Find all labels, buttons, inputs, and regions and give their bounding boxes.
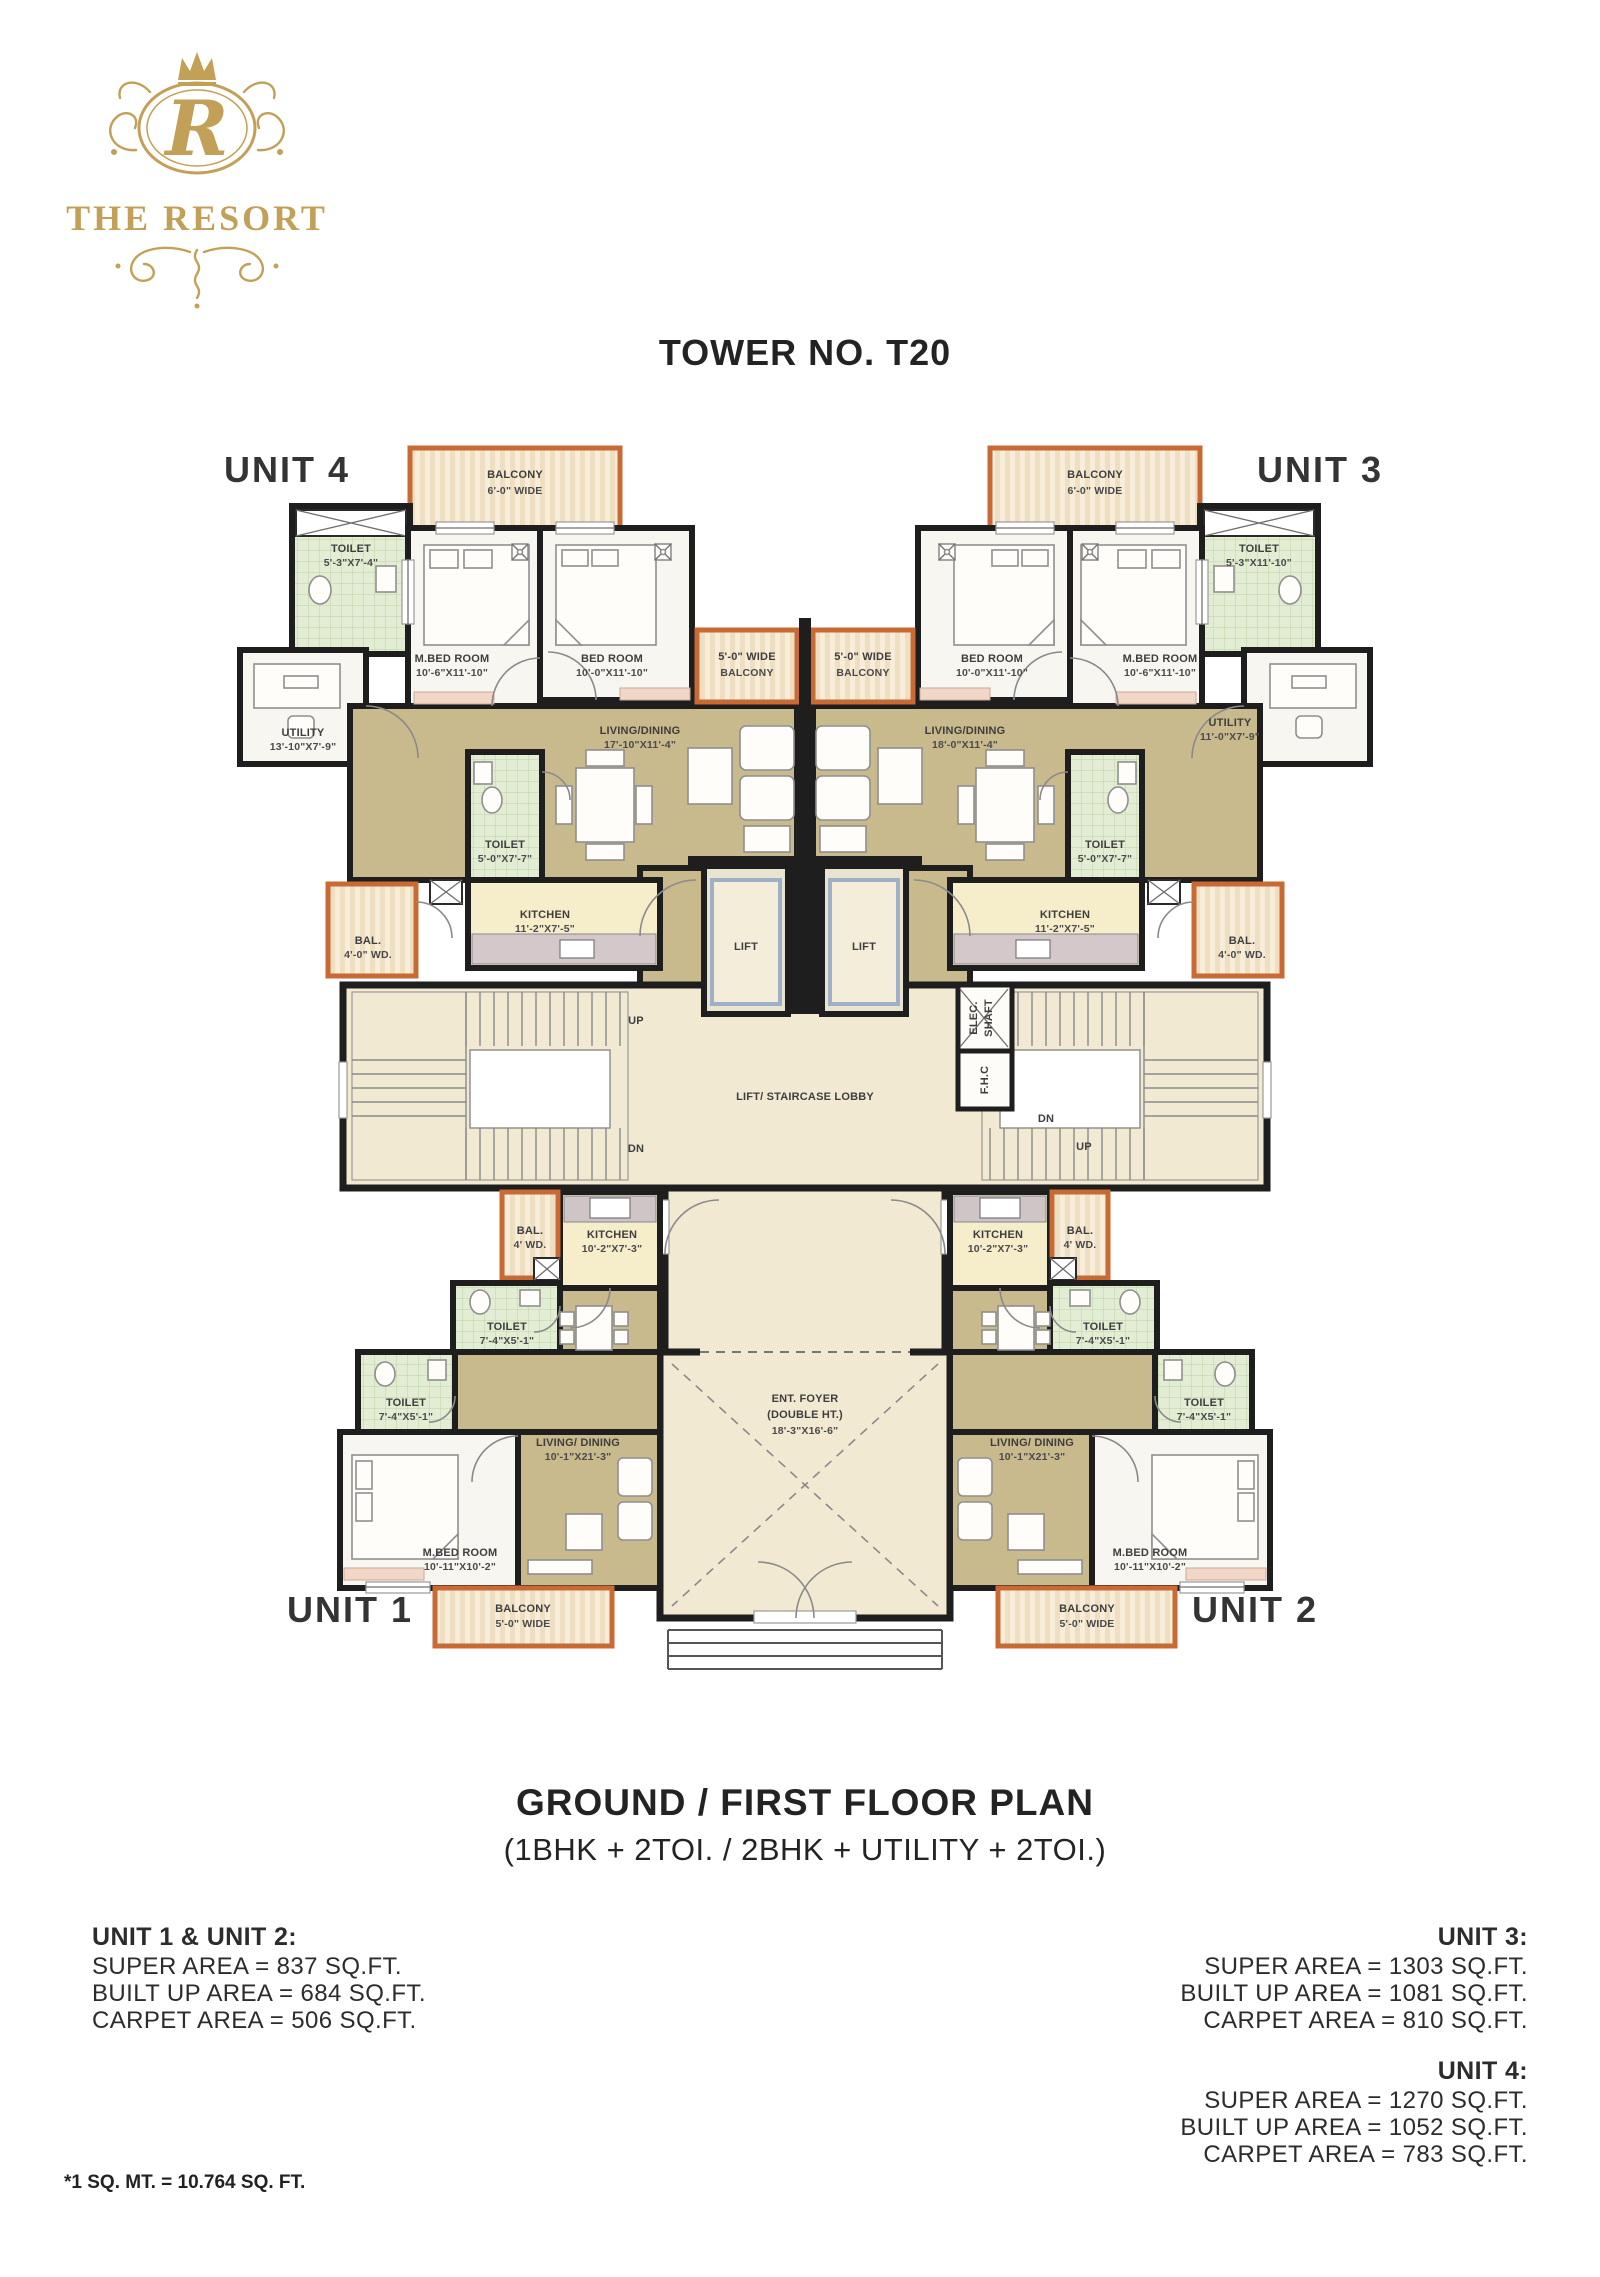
entrance-passage <box>665 1188 945 1352</box>
room-label: BAL. <box>355 935 381 947</box>
wardrobe-strip <box>620 688 690 700</box>
unit1-balcony <box>435 1588 612 1646</box>
room-label: BED ROOM <box>961 653 1023 665</box>
unit4-label: UNIT 4 <box>224 449 350 490</box>
foyer-dims: 18'-3"X16'-6" <box>772 1425 839 1437</box>
stats-heading: UNIT 3: <box>1180 1924 1528 1951</box>
room-dims: 11'-2"X7'-5" <box>1035 923 1095 935</box>
unit1-living-b <box>455 1352 660 1432</box>
room-label: BALCONY <box>1059 1603 1115 1615</box>
stats-heading: UNIT 4: <box>1180 2058 1528 2085</box>
window <box>366 1582 430 1593</box>
room-dims: 4' WD. <box>514 1239 547 1251</box>
room-label: TOILET <box>1085 839 1125 851</box>
room-label: BALCONY <box>495 1603 551 1615</box>
conversion-footnote: *1 SQ. MT. = 10.764 SQ. FT. <box>64 2172 305 2194</box>
room-label: 5'-0" WIDE <box>834 651 892 663</box>
room-dims: 5'-0" WIDE <box>1060 1618 1115 1630</box>
room-label: TOILET <box>1239 543 1279 555</box>
brochure-page: R THE RESORT TOWER NO. T20 UNIT 4 UNIT 3… <box>0 0 1600 2277</box>
room-dims: 18'-0"X11'-4" <box>932 739 998 751</box>
room-label: LIVING/ DINING <box>536 1437 620 1449</box>
lift-divider-wall <box>788 866 822 1014</box>
kitchen-sink <box>590 1198 630 1218</box>
room-dims: 10'-11"X10'-2" <box>424 1561 496 1573</box>
page-title: TOWER NO. T20 <box>659 332 951 373</box>
room-dims: 5'-3"X7'-4" <box>324 557 379 569</box>
room-dims: 17'-10"X11'-4" <box>604 739 676 751</box>
lobby-label: LIFT/ STAIRCASE LOBBY <box>736 1091 874 1103</box>
stats-line: SUPER AREA = 837 SQ.FT. <box>92 1953 426 1980</box>
wardrobe-strip <box>414 692 494 704</box>
unit2-label: UNIT 2 <box>1192 1589 1318 1630</box>
room-label: BAL. <box>1229 935 1255 947</box>
room-dims: 4'-0" WD. <box>344 949 392 961</box>
room-dims: 7'-4"X5'-1" <box>379 1411 434 1423</box>
room-dims: 6'-0" WIDE <box>1068 485 1123 497</box>
logo-ornament <box>116 248 279 309</box>
room-label: TOILET <box>331 543 371 555</box>
room-label: KITCHEN <box>973 1229 1023 1241</box>
entrance-steps <box>668 1630 942 1669</box>
stats-line: SUPER AREA = 1270 SQ.FT. <box>1180 2087 1528 2114</box>
stats-unit1-unit2: UNIT 1 & UNIT 2: SUPER AREA = 837 SQ.FT.… <box>92 1924 426 2034</box>
lift-right <box>822 866 906 1014</box>
stats-line: BUILT UP AREA = 1081 SQ.FT. <box>1180 1980 1528 2007</box>
room-label: LIVING/ DINING <box>990 1437 1074 1449</box>
unit1-label: UNIT 1 <box>287 1589 413 1630</box>
kitchen-sink <box>560 940 594 958</box>
logo-monogram: R <box>163 84 228 173</box>
room-dims: BALCONY <box>836 667 889 679</box>
room-label: LIVING/DINING <box>600 725 681 737</box>
room-label: UTILITY <box>1209 717 1252 729</box>
elec-shaft-label: ELEC. <box>968 1001 980 1034</box>
room-dims: BALCONY <box>720 667 773 679</box>
floor-plan-subtitle: (1BHK + 2TOI. / 2BHK + UTILITY + 2TOI.) <box>5 1832 1600 1868</box>
room-dims: 7'-4"X5'-1" <box>1076 1335 1131 1347</box>
room-dims: 5'-0"X7'-7" <box>478 853 533 865</box>
room-dims: 10'-2"X7'-3" <box>968 1243 1029 1255</box>
room-label: KITCHEN <box>520 909 570 921</box>
resort-logo: R THE RESORT <box>66 52 328 309</box>
room-label: M.BED ROOM <box>1123 653 1198 665</box>
room-dims: 10'-11"X10'-2" <box>1114 1561 1186 1573</box>
room-label: TOILET <box>386 1397 426 1409</box>
foyer-label: (DOUBLE HT.) <box>767 1409 843 1421</box>
room-label: BAL. <box>517 1225 543 1237</box>
stair-up-label: UP <box>1076 1141 1092 1153</box>
room-dims: 10'-6"X11'-10" <box>416 667 488 679</box>
room-dims: 10'-1"X21'-3" <box>999 1451 1066 1463</box>
foyer-label: ENT. FOYER <box>772 1393 839 1405</box>
room-dims: 11'-2"X7'-5" <box>515 923 575 935</box>
fhc-label: F.H.C <box>979 1066 991 1095</box>
room-dims: 10'-1"X21'-3" <box>545 1451 612 1463</box>
room-dims: 7'-4"X5'-1" <box>480 1335 535 1347</box>
room-label: TOILET <box>1184 1397 1224 1409</box>
stats-heading: UNIT 1 & UNIT 2: <box>92 1924 426 1951</box>
room-label: M.BED ROOM <box>415 653 490 665</box>
room-dims: 10'-6"X11'-10" <box>1124 667 1196 679</box>
stats-unit4: UNIT 4: SUPER AREA = 1270 SQ.FT. BUILT U… <box>1180 2058 1528 2168</box>
room-dims: 5'-3"X11'-10" <box>1226 557 1292 569</box>
stats-line: BUILT UP AREA = 684 SQ.FT. <box>92 1980 426 2007</box>
wardrobe-strip <box>344 1568 424 1580</box>
stats-line: CARPET AREA = 783 SQ.FT. <box>1180 2141 1528 2168</box>
room-label: BED ROOM <box>581 653 643 665</box>
room-dims: 4' WD. <box>1064 1239 1097 1251</box>
unit4-side-balcony <box>697 630 797 702</box>
axis-wall <box>799 618 811 870</box>
room-label: M.BED ROOM <box>1113 1547 1188 1559</box>
room-dims: 5'-0" WIDE <box>496 1618 551 1630</box>
room-label: LIVING/DINING <box>925 725 1006 737</box>
stats-line: CARPET AREA = 506 SQ.FT. <box>92 2007 426 2034</box>
room-label: TOILET <box>485 839 525 851</box>
room-label: BAL. <box>1067 1225 1093 1237</box>
floor-plan-title-block: GROUND / FIRST FLOOR PLAN (1BHK + 2TOI. … <box>5 1782 1600 1868</box>
room-dims: 11'-0"X7'-9" <box>1200 731 1260 743</box>
room-dims: 10'-0"X11'-10" <box>956 667 1028 679</box>
lift-left <box>704 866 788 1014</box>
stair-up-label: UP <box>628 1015 644 1027</box>
stats-unit3: UNIT 3: SUPER AREA = 1303 SQ.FT. BUILT U… <box>1180 1924 1528 2034</box>
room-label: M.BED ROOM <box>423 1547 498 1559</box>
lift-label: LIFT <box>852 941 876 953</box>
unit4-small-balcony <box>328 884 416 976</box>
stair-dn-label: DN <box>1038 1113 1054 1125</box>
bed-furniture <box>352 1455 458 1559</box>
entrance-foyer <box>660 1345 950 1623</box>
floor-plan-title: GROUND / FIRST FLOOR PLAN <box>5 1782 1600 1824</box>
room-dims: 10'-0"X11'-10" <box>576 667 648 679</box>
room-dims: 4'-0" WD. <box>1218 949 1266 961</box>
room-label: 5'-0" WIDE <box>718 651 776 663</box>
room-dims: 5'-0"X7'-7" <box>1078 853 1133 865</box>
crown-icon <box>178 52 216 80</box>
room-label: TOILET <box>487 1321 527 1333</box>
room-dims: 13'-10"X7'-9" <box>270 741 337 753</box>
room-label: TOILET <box>1083 1321 1123 1333</box>
room-label: BALCONY <box>1067 469 1123 481</box>
logo-name: THE RESORT <box>66 198 328 238</box>
room-label: UTILITY <box>282 727 325 739</box>
stats-line: BUILT UP AREA = 1052 SQ.FT. <box>1180 2114 1528 2141</box>
room-label: KITCHEN <box>1040 909 1090 921</box>
room-dims: 6'-0" WIDE <box>488 485 543 497</box>
room-label: BALCONY <box>487 469 543 481</box>
unit3-label: UNIT 3 <box>1257 449 1383 490</box>
room-dims: 7'-4"X5'-1" <box>1177 1411 1232 1423</box>
room-dims: 10'-2"X7'-3" <box>582 1243 643 1255</box>
stats-line: CARPET AREA = 810 SQ.FT. <box>1180 2007 1528 2034</box>
stats-line: SUPER AREA = 1303 SQ.FT. <box>1180 1953 1528 1980</box>
elec-shaft-label: SHAFT <box>983 999 995 1037</box>
room-label: KITCHEN <box>587 1229 637 1241</box>
stair-dn-label: DN <box>628 1143 644 1155</box>
lift-label: LIFT <box>734 941 758 953</box>
